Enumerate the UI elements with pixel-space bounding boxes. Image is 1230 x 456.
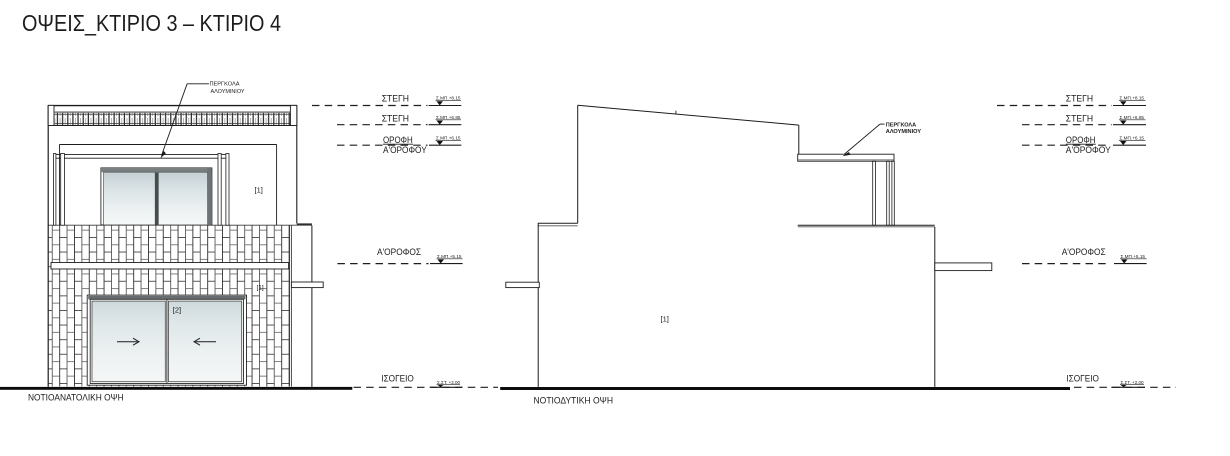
svg-text:ΣΤΕΓΗ: ΣΤΕΓΗ — [382, 94, 409, 105]
svg-text:[1]: [1] — [255, 186, 263, 195]
svg-text:ΣΤΕΓΗ: ΣΤΕΓΗ — [382, 113, 409, 124]
svg-text:Α'ΟΡΟΦΟΣ: Α'ΟΡΟΦΟΣ — [1062, 247, 1106, 258]
svg-text:ΝΟΤΙΟΔΥΤΙΚΗ ΟΨΗ: ΝΟΤΙΟΔΥΤΙΚΗ ΟΨΗ — [534, 396, 614, 406]
svg-text:ΙΣΟΓΕΙΟ: ΙΣΟΓΕΙΟ — [381, 374, 414, 385]
svg-text:ΠΕΡΓΚΟΛΑ: ΠΕΡΓΚΟΛΑ — [210, 82, 241, 88]
svg-text:[1]: [1] — [257, 285, 264, 292]
svg-text:ΟΨΕΙΣ_ΚΤΙΡΙΟ 3 – ΚΤΙΡΙΟ 4: ΟΨΕΙΣ_ΚΤΙΡΙΟ 3 – ΚΤΙΡΙΟ 4 — [22, 10, 281, 36]
svg-text:[1]: [1] — [661, 315, 669, 324]
svg-text:Σ.ΜΠ.+5.15: Σ.ΜΠ.+5.15 — [1121, 254, 1146, 259]
svg-text:Σ.ΣΤ. +2.00: Σ.ΣΤ. +2.00 — [1121, 380, 1144, 385]
svg-text:Σ.ΜΠ.+6.85: Σ.ΜΠ.+6.85 — [1120, 115, 1145, 120]
svg-text:ΝΟΤΙΟΑΝΑΤΟΛΙΚΗ ΟΨΗ: ΝΟΤΙΟΑΝΑΤΟΛΙΚΗ ΟΨΗ — [28, 393, 124, 403]
svg-text:[2]: [2] — [173, 306, 181, 315]
svg-text:ΑΛΟΥΜΙΝΙΟΥ: ΑΛΟΥΜΙΝΙΟΥ — [211, 89, 246, 95]
svg-text:Σ.ΜΠ.+8.15: Σ.ΜΠ.+8.15 — [436, 96, 461, 101]
svg-text:Σ.ΜΠ.+6.15: Σ.ΜΠ.+6.15 — [436, 135, 461, 140]
svg-text:ΑΛΟΥΜΙΝΙΟΥ: ΑΛΟΥΜΙΝΙΟΥ — [886, 129, 922, 135]
svg-text:Α'ΟΡΟΦΟΥ: Α'ΟΡΟΦΟΥ — [383, 145, 427, 156]
svg-text:Σ.ΣΤ. +2.00: Σ.ΣΤ. +2.00 — [437, 380, 460, 385]
svg-text:Σ.ΜΠ.+8.15: Σ.ΜΠ.+8.15 — [1120, 96, 1145, 101]
svg-text:Α'ΟΡΟΦΟΣ: Α'ΟΡΟΦΟΣ — [377, 247, 421, 258]
svg-text:Α'ΟΡΟΦΟΥ: Α'ΟΡΟΦΟΥ — [1066, 145, 1112, 156]
svg-text:ΙΣΟΓΕΙΟ: ΙΣΟΓΕΙΟ — [1066, 373, 1099, 384]
svg-text:Σ.ΜΠ.+6.85: Σ.ΜΠ.+6.85 — [436, 115, 461, 120]
svg-text:ΠΕΡΓΚΟΛΑ: ΠΕΡΓΚΟΛΑ — [886, 123, 917, 129]
svg-text:ΣΤΕΓΗ: ΣΤΕΓΗ — [1066, 94, 1093, 105]
svg-text:ΣΤΕΓΗ: ΣΤΕΓΗ — [1066, 113, 1093, 124]
svg-text:Σ.ΜΠ.+6.15: Σ.ΜΠ.+6.15 — [1120, 135, 1145, 140]
svg-text:Σ.ΜΠ.+5.15: Σ.ΜΠ.+5.15 — [437, 254, 462, 259]
